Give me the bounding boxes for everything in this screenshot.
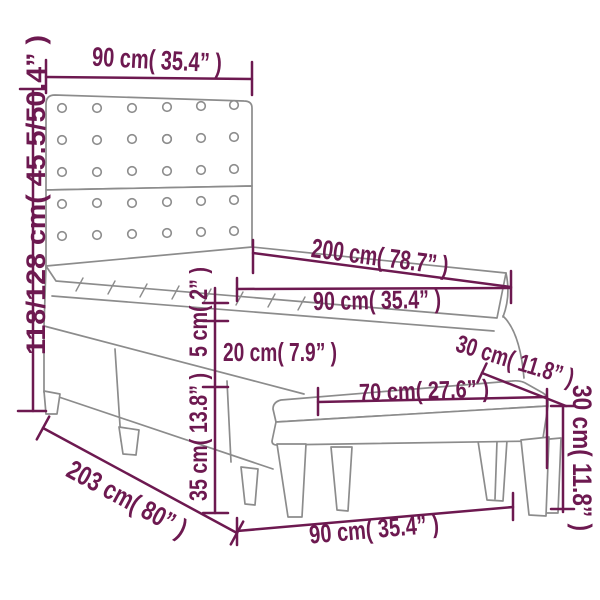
dim-bed-width-bottom-label: 90 cm( 35.4” )	[308, 508, 440, 549]
dim-base-height-label: 35 cm( 13.8” )	[185, 373, 213, 501]
dim-mattress-thickness-label: 20 cm( 7.9” )	[223, 337, 337, 367]
bed-diagram-svg: 90 cm( 35.4” ) 118/128 cm( 45.5/50.4” ) …	[0, 0, 600, 600]
dim-bench-length-label: 70 cm( 27.6” )	[359, 375, 490, 408]
dim-topper-thickness-label: 5 cm( 2” )	[185, 267, 213, 357]
dim-height-range: 118/128 cm( 45.5/50.4” )	[18, 35, 51, 411]
dim-bed-width-bottom: 90 cm( 35.4” )	[237, 493, 513, 550]
headboard	[46, 95, 252, 268]
bench-leg-rear-right	[478, 440, 507, 501]
bed-leg-front-mid	[119, 427, 139, 455]
dim-headboard-width: 90 cm( 35.4” )	[46, 42, 252, 95]
dim-bench-height-label: 30 cm( 11.8” )	[567, 385, 597, 531]
dim-mattress-width-label: 90 cm( 35.4” )	[313, 284, 442, 316]
bench-leg-front-right	[521, 437, 549, 516]
bench-leg-front-left	[277, 444, 306, 517]
dim-headboard-width-label: 90 cm( 35.4” )	[91, 42, 222, 79]
dim-height-range-label: 118/128 cm( 45.5/50.4” )	[21, 35, 51, 355]
dimension-diagram: 90 cm( 35.4” ) 118/128 cm( 45.5/50.4” ) …	[0, 0, 600, 600]
bench-leg-mid-left	[331, 447, 352, 511]
bed-leg-front-right	[241, 467, 258, 505]
headboard-upper-panel	[46, 95, 252, 190]
